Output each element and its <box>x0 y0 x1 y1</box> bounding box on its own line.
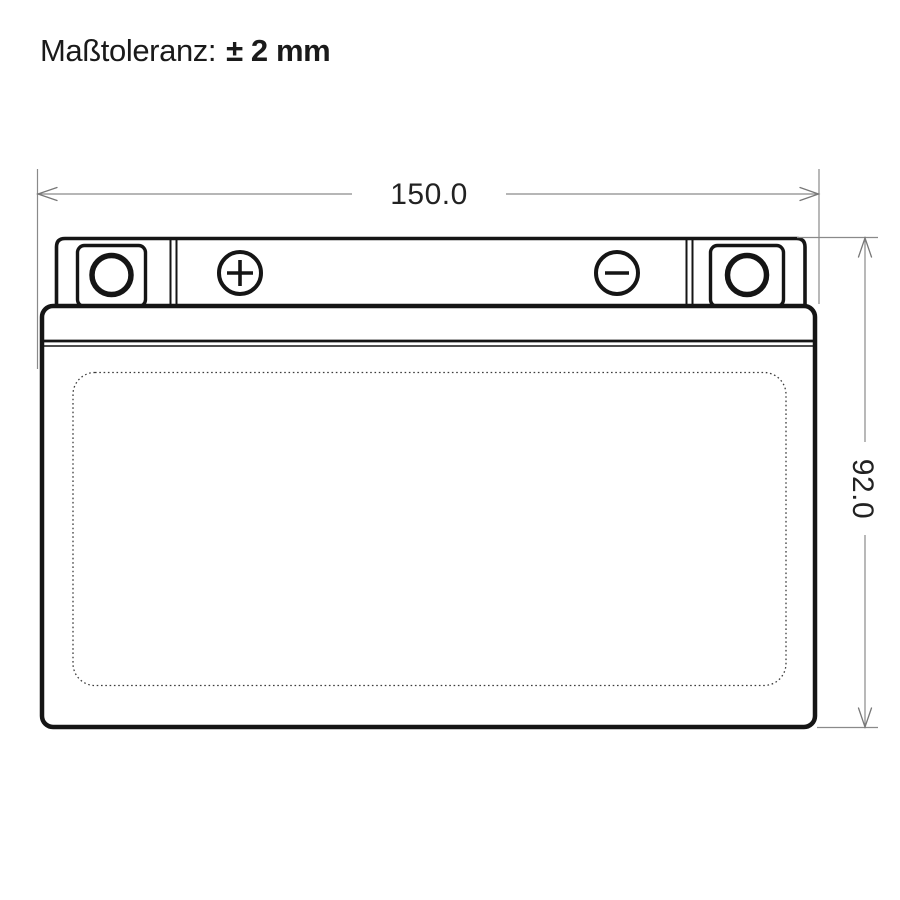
positive-terminal-icon <box>219 252 261 294</box>
technical-drawing-page: Maßtoleranz:± 2 mm <box>0 0 900 900</box>
battery-dimension-diagram: 150.0 92.0 <box>0 0 900 900</box>
width-dimension-value: 150.0 <box>390 178 468 211</box>
right-post-circle-icon <box>728 256 767 295</box>
height-dimension-value: 92.0 <box>846 459 879 519</box>
battery-body <box>42 306 815 727</box>
left-post-circle-icon <box>92 256 131 295</box>
negative-terminal-icon <box>596 252 638 294</box>
